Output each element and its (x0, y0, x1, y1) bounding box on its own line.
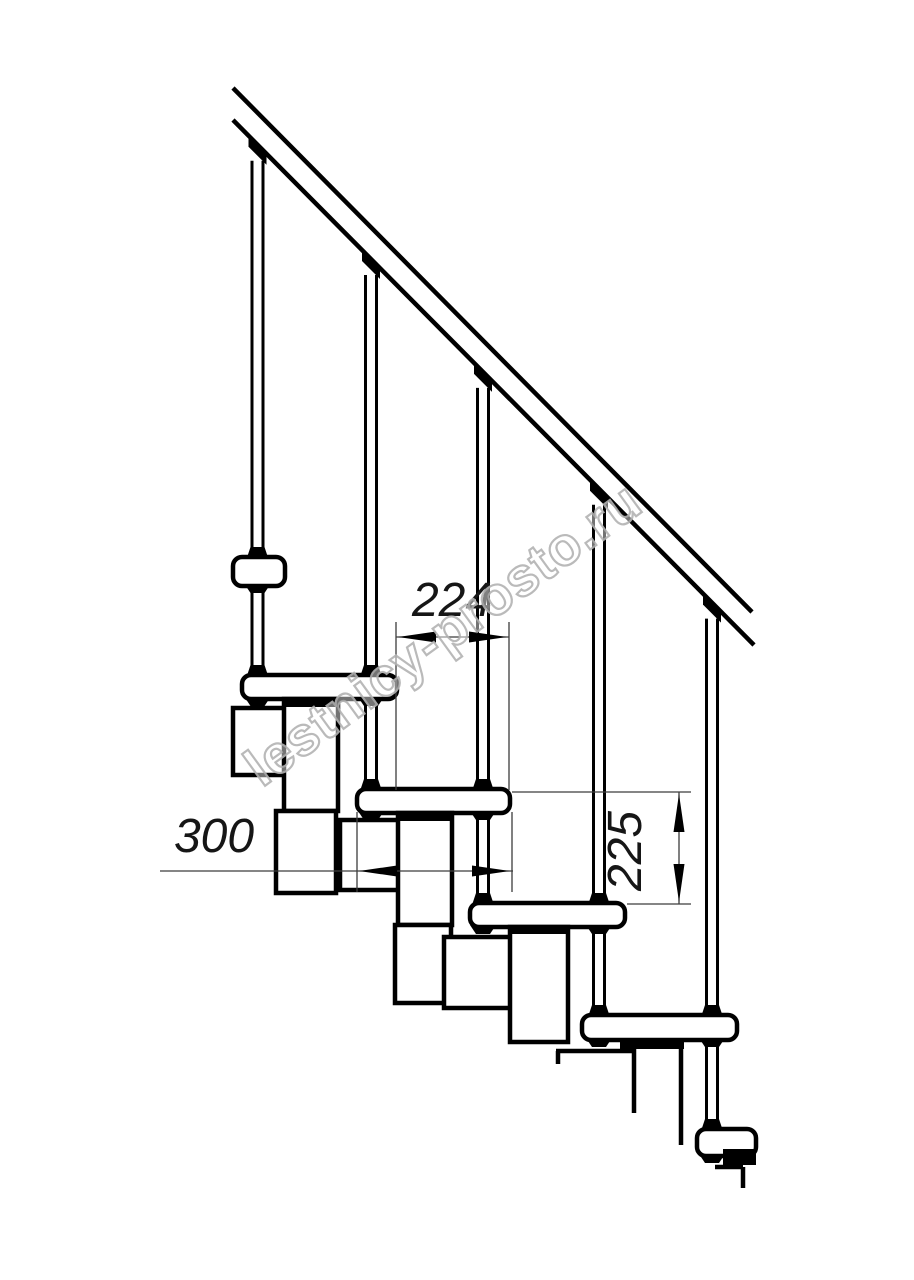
staircase-drawing: 224300225lestnicy-prosto.ru (0, 0, 914, 1280)
baluster-collar-10 (701, 1119, 723, 1131)
tread-5 (582, 1015, 737, 1040)
module-box-4 (340, 820, 404, 890)
module-box-3 (276, 811, 336, 893)
module-box-7 (444, 937, 514, 1008)
module-connector-bar-2 (398, 812, 454, 821)
tread-underclamp-8 (586, 1038, 612, 1047)
module-box-8 (510, 927, 568, 1042)
module-connector-bar-5 (723, 1149, 756, 1165)
baluster-collar-5 (472, 779, 494, 791)
tread-underclamp-2 (245, 697, 271, 706)
module-connector-bar-4 (620, 1040, 684, 1049)
tread-3 (357, 789, 510, 813)
baluster-collar-6 (472, 893, 494, 905)
baluster-collar-9 (701, 1005, 723, 1017)
dimension-label-tread_depth: 300 (174, 810, 254, 863)
tread-1 (233, 557, 285, 586)
technical-drawing-page: 224300225lestnicy-prosto.ru (0, 0, 914, 1280)
tread-underclamp-9 (699, 1038, 725, 1047)
baluster-collar-4 (360, 779, 382, 791)
dimension-arrow-down-6 (674, 864, 685, 902)
baluster-collar-2 (247, 665, 269, 677)
tread-underclamp-6 (470, 925, 496, 934)
tread-underclamp-1 (245, 584, 271, 593)
tread-4 (470, 903, 625, 927)
dimension-label-step_rise: 225 (599, 811, 652, 892)
dimension-arrow-up-5 (674, 794, 685, 832)
tread-underclamp-7 (586, 925, 612, 934)
baluster-collar-1 (247, 547, 269, 559)
tread-underclamp-5 (470, 811, 496, 820)
baluster-collar-7 (588, 893, 610, 905)
watermark: lestnicy-prosto.ru (234, 471, 653, 798)
module-box-5 (398, 813, 452, 925)
dimension-arrow-right-4 (472, 866, 510, 877)
tread-underclamp-10 (699, 1154, 725, 1163)
handrail-upper-line (233, 88, 752, 612)
baluster-collar-8 (588, 1005, 610, 1017)
module-connector-bar-3 (510, 926, 568, 934)
